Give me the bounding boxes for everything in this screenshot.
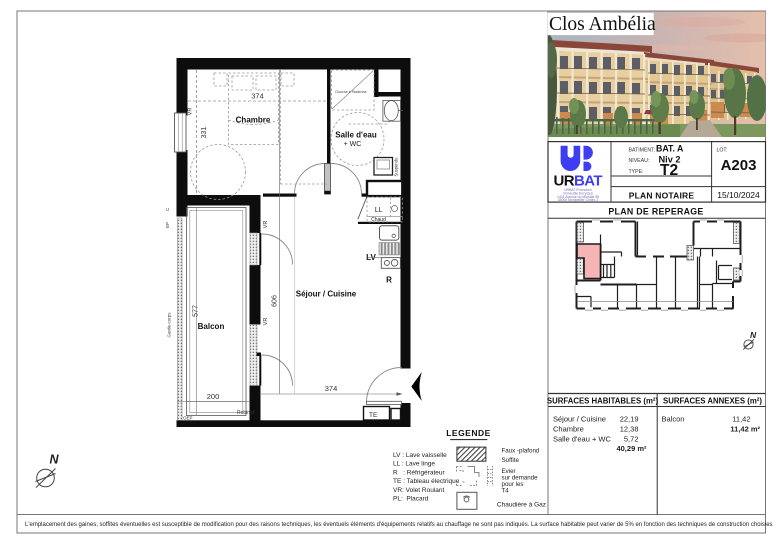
svg-text:11,42 m²: 11,42 m² — [730, 425, 760, 434]
svg-text:NIVEAU:: NIVEAU: — [629, 158, 650, 164]
svg-text:N: N — [750, 330, 757, 340]
svg-text:PL: Placard: PL: Placard — [393, 496, 429, 503]
svg-text:40,29 m²: 40,29 m² — [616, 444, 647, 453]
svg-text:Garde-corps: Garde-corps — [167, 312, 172, 338]
svg-text:LL: LL — [375, 207, 383, 214]
svg-text:Clos Ambélia: Clos Ambélia — [549, 14, 656, 35]
svg-text:Soffite: Soffite — [502, 457, 520, 464]
svg-text:SURFACES HABITABLES (m²): SURFACES HABITABLES (m²) — [547, 396, 659, 405]
svg-text:Faux -plafond: Faux -plafond — [502, 448, 540, 455]
svg-text:PLAN DE REPERAGE: PLAN DE REPERAGE — [608, 206, 703, 216]
svg-text:Chaud: Chaud — [371, 217, 386, 223]
svg-text:11,42: 11,42 — [732, 415, 750, 424]
svg-text:N: N — [50, 453, 60, 467]
svg-text:Salle d'eau: Salle d'eau — [335, 131, 377, 140]
svg-text:URBAT: URBAT — [554, 173, 603, 190]
svg-text:Chambre: Chambre — [236, 116, 271, 125]
svg-text:Séjour / Cuisine: Séjour / Cuisine — [553, 415, 606, 424]
svg-text:SURFACES ANNEXES (m²): SURFACES ANNEXES (m²) — [663, 396, 762, 405]
svg-text:BATIMENT:: BATIMENT: — [629, 147, 656, 153]
svg-text:200: 200 — [207, 392, 220, 401]
svg-text:374: 374 — [325, 384, 338, 393]
svg-text:+ WC: + WC — [344, 141, 362, 148]
svg-text:577: 577 — [193, 305, 200, 317]
svg-text:Chaudière à Gaz: Chaudière à Gaz — [497, 502, 546, 509]
svg-text:LL : Lave linge: LL : Lave linge — [393, 461, 435, 468]
svg-text:34000 Montpellier Cedex 2: 34000 Montpellier Cedex 2 — [558, 198, 599, 202]
svg-text:606: 606 — [272, 295, 279, 307]
svg-text:EP: EP — [165, 222, 170, 228]
svg-text:VR: VR — [263, 221, 269, 229]
svg-text:T2: T2 — [660, 162, 678, 179]
svg-text:TYPE:: TYPE: — [629, 169, 644, 175]
svg-text:VR: VR — [188, 108, 194, 116]
svg-text:VR: VR — [263, 318, 269, 326]
svg-text:331: 331 — [201, 127, 208, 139]
svg-text:Robinet: Robinet — [237, 410, 255, 416]
svg-text:TE : Tableau électrique: TE : Tableau électrique — [393, 478, 460, 485]
svg-text:Balcon: Balcon — [198, 322, 225, 331]
svg-text:T4: T4 — [502, 488, 510, 495]
svg-text:374: 374 — [251, 92, 264, 101]
svg-text:15/10/2024: 15/10/2024 — [717, 190, 760, 200]
svg-text:LV : Lave vaisselle: LV : Lave vaisselle — [393, 452, 447, 459]
svg-text:22,19: 22,19 — [620, 415, 639, 424]
svg-text:PLAN NOTAIRE: PLAN NOTAIRE — [629, 190, 695, 200]
svg-text:Salle d'eau + WC: Salle d'eau + WC — [553, 435, 612, 444]
svg-text:LOT:: LOT: — [717, 147, 728, 153]
svg-text:5,72: 5,72 — [624, 435, 639, 444]
svg-text:OEP: OEP — [183, 416, 193, 421]
svg-text:Chambre: Chambre — [553, 425, 584, 434]
svg-text:12,38: 12,38 — [620, 425, 639, 434]
svg-text:Séjour / Cuisine: Séjour / Cuisine — [296, 289, 357, 298]
svg-text:R : Réfrigérateur: R : Réfrigérateur — [393, 469, 445, 476]
svg-text:Balcon: Balcon — [662, 415, 685, 424]
svg-text:VR: Volet Roulant: VR: Volet Roulant — [393, 487, 445, 494]
svg-text:L'emplacement des gaines, soff: L'emplacement des gaines, soffites évent… — [25, 522, 773, 528]
svg-text:R: R — [386, 276, 392, 285]
svg-text:Douche à l'italienne: Douche à l'italienne — [335, 90, 366, 94]
svg-text:A203: A203 — [721, 157, 757, 174]
svg-text:BAT. A: BAT. A — [656, 144, 684, 154]
svg-text:LEGENDE: LEGENDE — [446, 428, 491, 438]
svg-text:Suspendu: Suspendu — [393, 157, 398, 177]
svg-text:TE: TE — [369, 412, 378, 419]
